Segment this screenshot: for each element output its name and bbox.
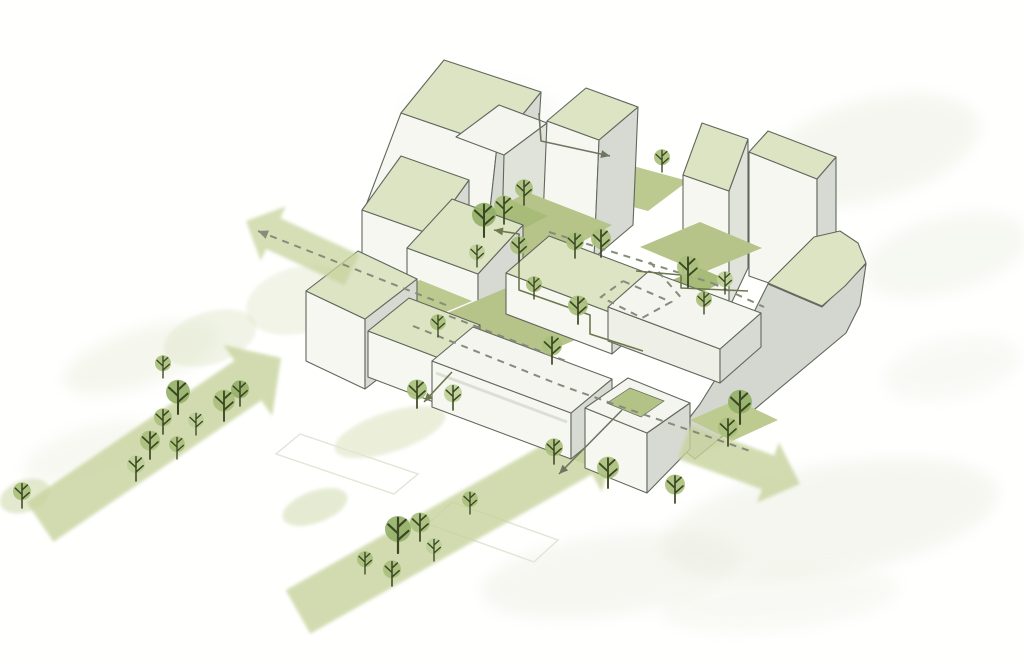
blob-bottom-left bbox=[278, 480, 353, 533]
wash-right bbox=[877, 324, 1024, 412]
massing-axon-svg bbox=[0, 0, 1024, 664]
wash-top-right-b bbox=[853, 196, 1024, 313]
diagram-canvas bbox=[0, 0, 1024, 664]
scene-root bbox=[0, 60, 1024, 642]
